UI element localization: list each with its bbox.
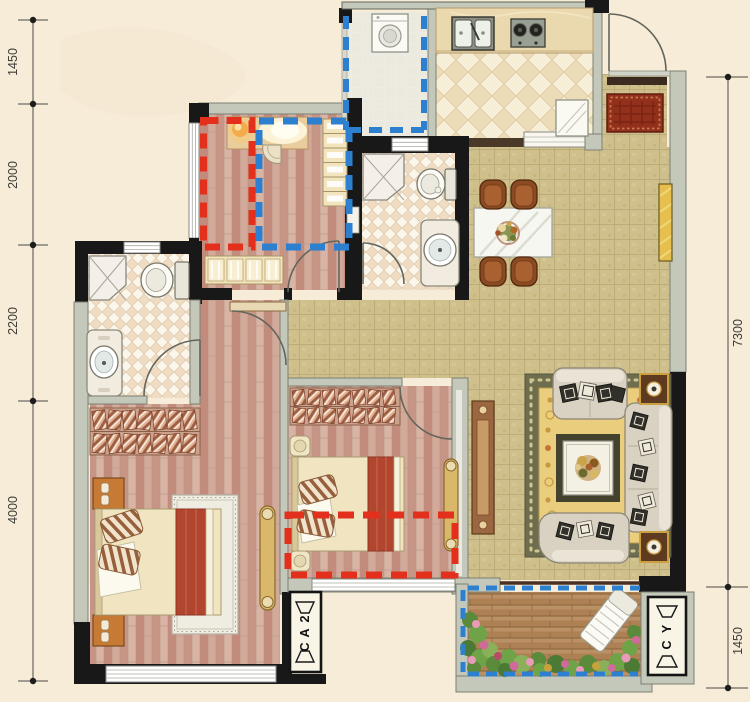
svg-text:2000: 2000 xyxy=(6,161,20,189)
svg-text:1450: 1450 xyxy=(731,627,745,655)
svg-text:7300: 7300 xyxy=(731,319,745,347)
svg-text:2200: 2200 xyxy=(6,307,20,335)
svg-text:A: A xyxy=(298,628,312,637)
svg-text:4000: 4000 xyxy=(6,496,20,524)
svg-text:Y: Y xyxy=(660,624,674,633)
svg-text:C: C xyxy=(660,640,674,649)
svg-text:2: 2 xyxy=(298,615,312,622)
svg-text:1450: 1450 xyxy=(6,48,20,76)
svg-text:C: C xyxy=(298,642,312,651)
